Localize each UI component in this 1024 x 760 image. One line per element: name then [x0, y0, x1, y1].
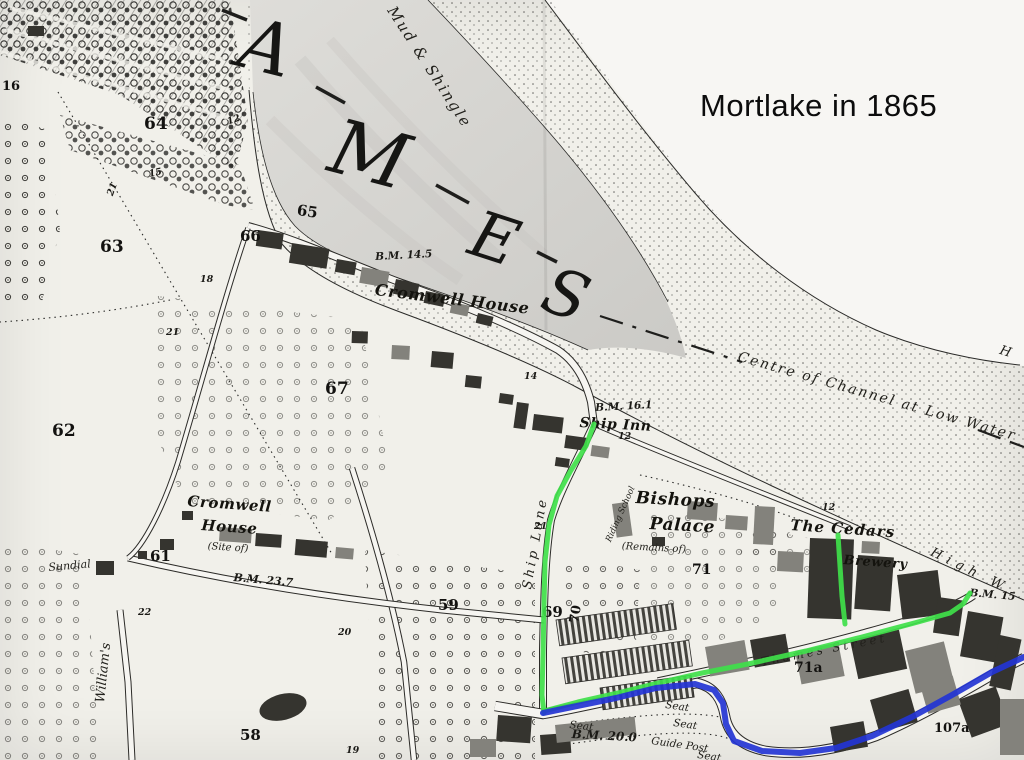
high-street-route — [543, 657, 1024, 753]
map-canvas: AMESMud & ShingleCentre of Channel at Lo… — [0, 0, 1024, 760]
page-title: Mortlake in 1865 — [700, 88, 937, 124]
ship-lane-route — [542, 424, 594, 713]
brewery-path-route — [838, 535, 845, 624]
thames-street-route — [544, 593, 970, 711]
